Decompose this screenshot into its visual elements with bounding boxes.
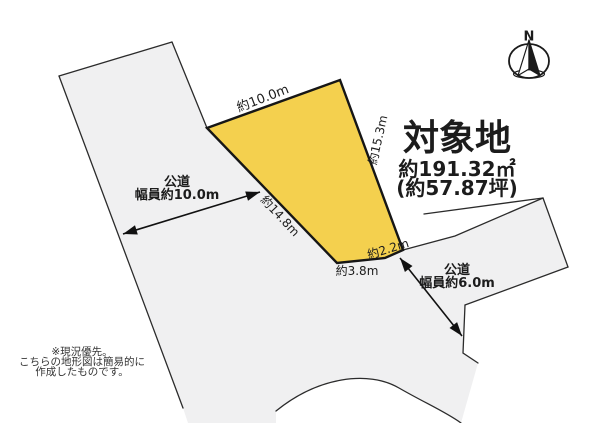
road-se-width: 幅員約6.0m <box>419 277 495 290</box>
road-west-label: 公道 幅員約10.0m <box>135 176 220 202</box>
dimension-bottom-edge: 約3.8m <box>336 265 379 277</box>
target-title: 対象地 <box>403 122 511 156</box>
note-line3: 作成したものです。 <box>19 367 145 377</box>
road-west-width: 幅員約10.0m <box>135 189 220 202</box>
target-info-block: 対象地 約191.32㎡ (約57.87坪) <box>396 122 518 198</box>
target-area-tsubo: (約57.87坪) <box>396 179 518 198</box>
road-se-label: 公道 幅員約6.0m <box>419 264 495 290</box>
road-se-notch <box>463 305 478 363</box>
disclaimer-note: ※現況優先。 こちらの地形図は簡易的に 作成したものです。 <box>19 347 145 378</box>
north-compass-icon <box>509 40 549 78</box>
north-label: N <box>524 31 535 44</box>
land-plot-diagram: N 対象地 約191.32㎡ (約57.87坪) 約10.0m 約15.3m 約… <box>0 0 600 423</box>
